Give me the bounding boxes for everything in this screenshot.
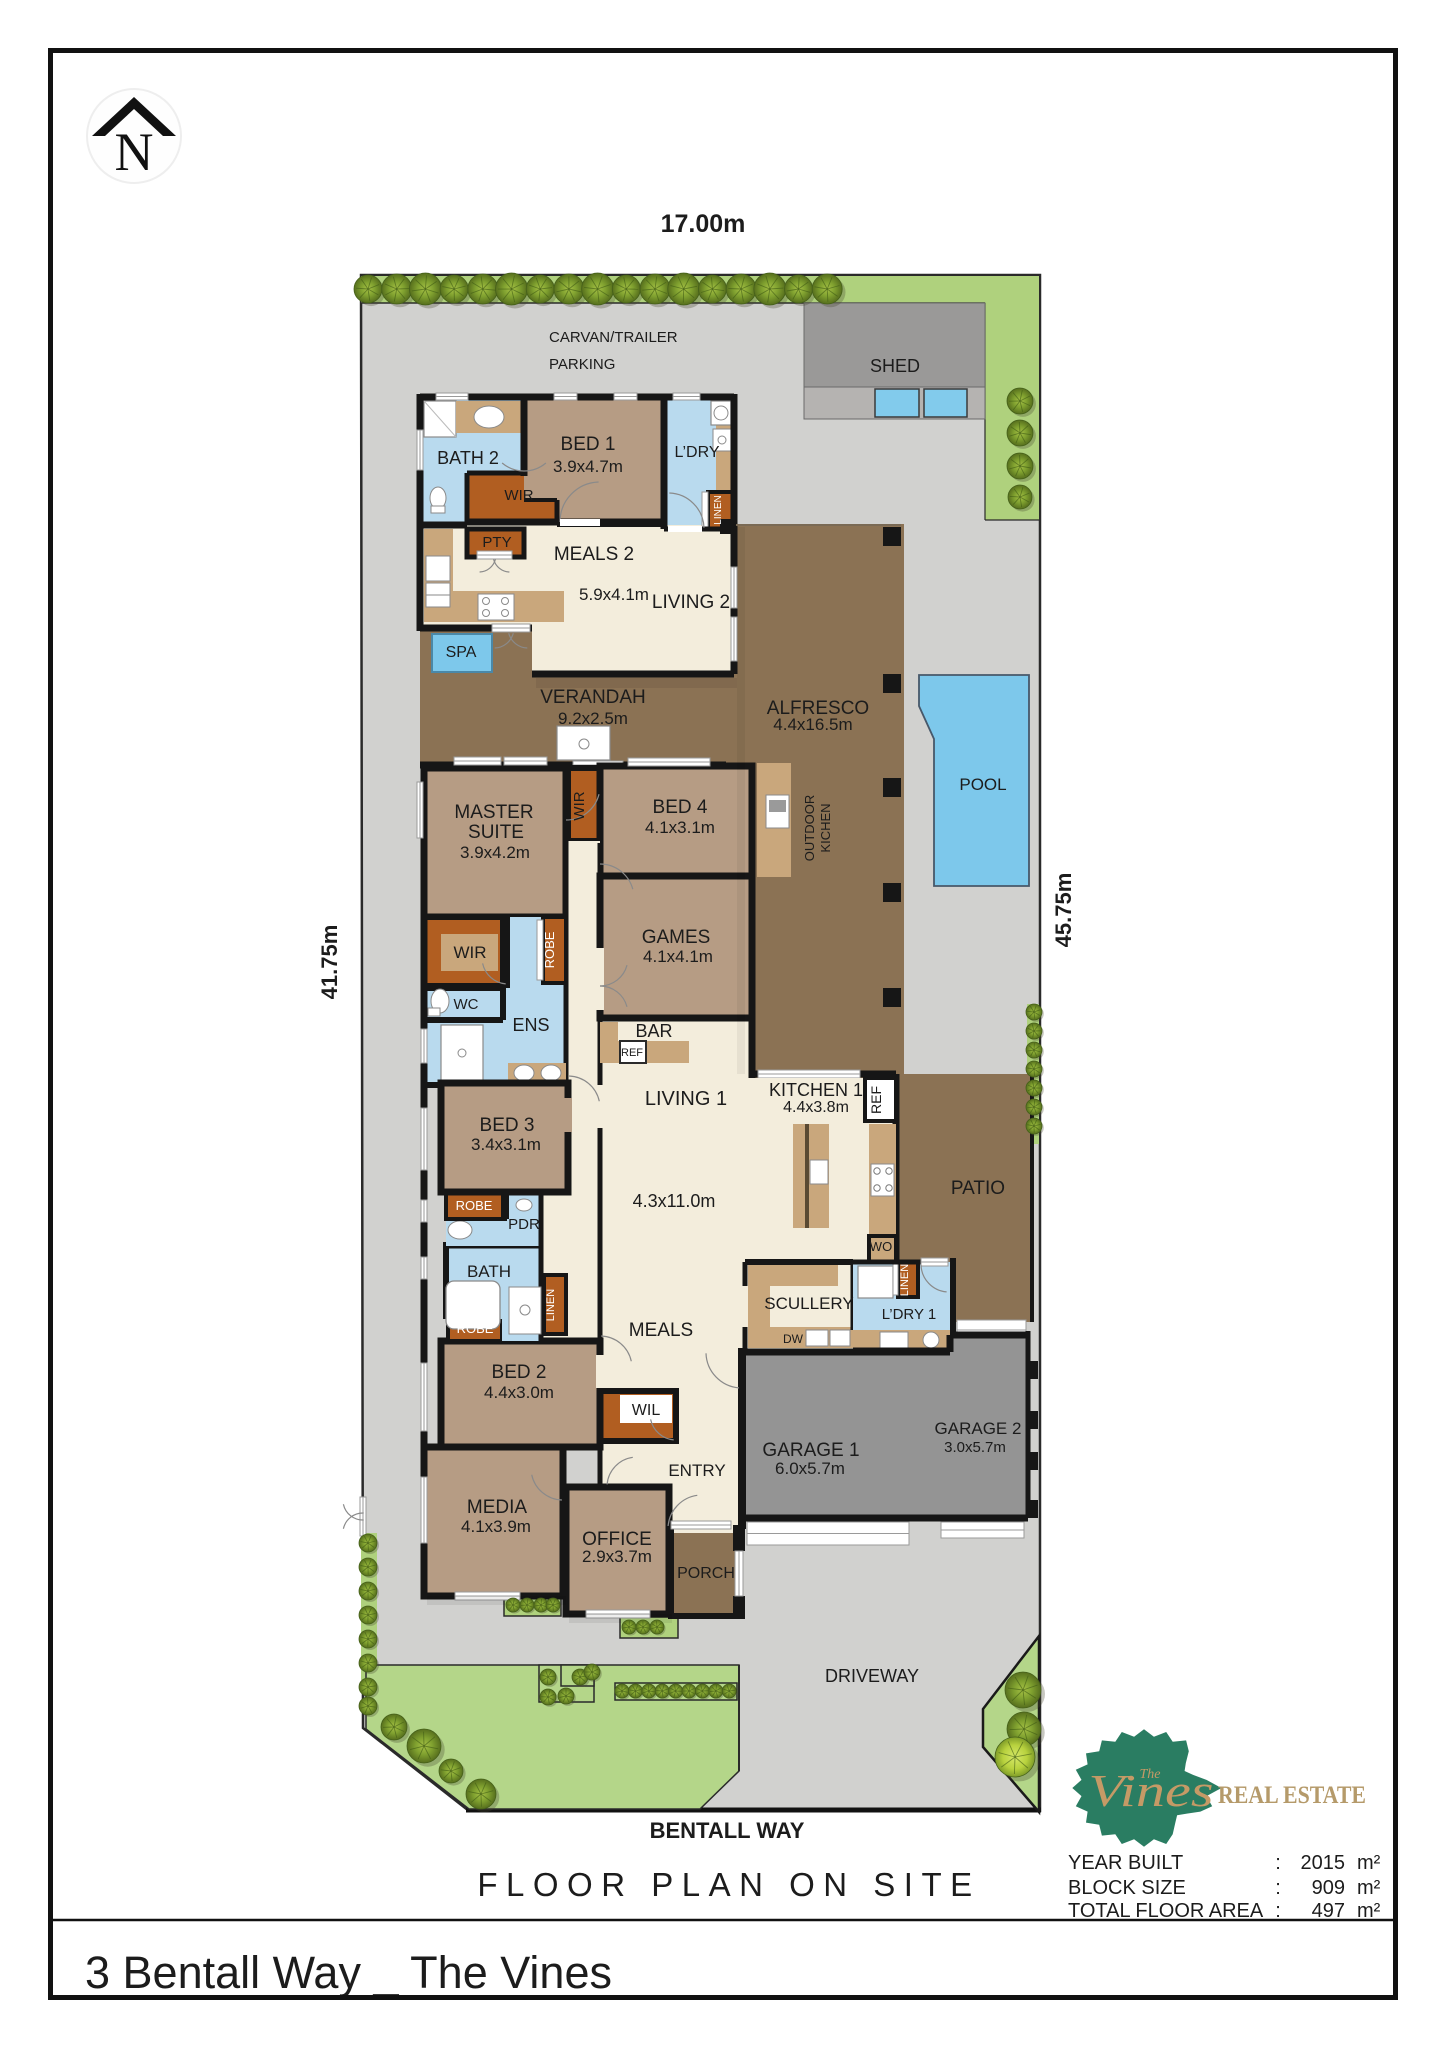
- svg-text:LINEN: LINEN: [899, 1264, 911, 1296]
- svg-text:MASTER: MASTER: [454, 802, 533, 823]
- svg-text:REF: REF: [621, 1047, 643, 1059]
- svg-text:BATH: BATH: [467, 1262, 511, 1281]
- svg-text:DRIVEWAY: DRIVEWAY: [825, 1666, 919, 1686]
- svg-text:BENTALL WAY: BENTALL WAY: [650, 1818, 805, 1843]
- svg-text:45.75m: 45.75m: [1051, 873, 1076, 948]
- svg-text:BED 3: BED 3: [480, 1115, 535, 1136]
- svg-text:MEALS 2: MEALS 2: [554, 544, 634, 565]
- svg-text:MEDIA: MEDIA: [467, 1497, 528, 1518]
- svg-text:ROBE: ROBE: [457, 1321, 494, 1336]
- svg-text:PATIO: PATIO: [951, 1178, 1005, 1199]
- svg-text:SPA: SPA: [446, 644, 477, 661]
- svg-text:WIR: WIR: [571, 791, 588, 820]
- svg-text:3.9x4.7m: 3.9x4.7m: [553, 457, 623, 476]
- svg-text:909: 909: [1312, 1877, 1345, 1899]
- svg-text:m²: m²: [1357, 1900, 1381, 1922]
- svg-text:GARAGE 2: GARAGE 2: [935, 1419, 1022, 1438]
- svg-text:LIVING 1: LIVING 1: [645, 1088, 727, 1110]
- svg-text:4.4x3.0m: 4.4x3.0m: [484, 1383, 554, 1402]
- svg-text:WIR: WIR: [453, 943, 486, 962]
- svg-text:SHED: SHED: [870, 356, 920, 376]
- svg-text:497: 497: [1312, 1900, 1345, 1922]
- svg-text:4.3x11.0m: 4.3x11.0m: [633, 1191, 716, 1211]
- svg-text:MEALS: MEALS: [629, 1320, 693, 1341]
- svg-text:TOTAL FLOOR AREA: TOTAL FLOOR AREA: [1068, 1900, 1264, 1922]
- svg-text:BATH 2: BATH 2: [437, 448, 499, 468]
- svg-text:DW: DW: [783, 1332, 804, 1346]
- svg-text:PARKING: PARKING: [549, 356, 615, 373]
- svg-text:ENS: ENS: [512, 1015, 549, 1035]
- svg-text:6.0x5.7m: 6.0x5.7m: [775, 1459, 845, 1478]
- svg-text::: :: [1275, 1852, 1281, 1874]
- svg-text:L’DRY 1: L’DRY 1: [882, 1306, 937, 1323]
- svg-text:SCULLERY: SCULLERY: [764, 1294, 853, 1313]
- svg-text:OUTDOOR: OUTDOOR: [802, 795, 817, 861]
- svg-text:m²: m²: [1357, 1852, 1381, 1874]
- svg-text:2.9x3.7m: 2.9x3.7m: [582, 1547, 652, 1566]
- svg-text:BED 1: BED 1: [561, 434, 616, 455]
- svg-text:4.4x16.5m: 4.4x16.5m: [773, 715, 852, 734]
- svg-text:WO: WO: [870, 1239, 892, 1254]
- svg-text:BED 4: BED 4: [653, 797, 708, 818]
- svg-text:BLOCK SIZE: BLOCK SIZE: [1068, 1877, 1186, 1899]
- svg-text:PTY: PTY: [482, 534, 511, 551]
- svg-text:N: N: [115, 122, 154, 182]
- svg-text:LINEN: LINEN: [713, 495, 724, 524]
- svg-text:9.2x2.5m: 9.2x2.5m: [558, 709, 628, 728]
- svg-text:3.4x3.1m: 3.4x3.1m: [471, 1135, 541, 1154]
- svg-text:4.1x4.1m: 4.1x4.1m: [643, 947, 713, 966]
- svg-text:KICHEN: KICHEN: [818, 803, 833, 852]
- svg-text:2015: 2015: [1301, 1852, 1346, 1874]
- svg-text:4.1x3.1m: 4.1x3.1m: [645, 818, 715, 837]
- svg-text:BAR: BAR: [635, 1021, 672, 1041]
- svg-text:CARVAN/TRAILER: CARVAN/TRAILER: [549, 329, 678, 346]
- svg-text:LINEN: LINEN: [545, 1289, 557, 1321]
- svg-text:PORCH: PORCH: [677, 1565, 735, 1582]
- svg-text:SUITE: SUITE: [468, 822, 524, 843]
- svg-text:PDR: PDR: [508, 1216, 540, 1233]
- svg-text:REAL ESTATE: REAL ESTATE: [1218, 1782, 1366, 1809]
- svg-text:POOL: POOL: [959, 775, 1006, 794]
- svg-text:LIVING 2: LIVING 2: [652, 592, 730, 613]
- svg-text:5.9x4.1m: 5.9x4.1m: [579, 585, 649, 604]
- svg-text:WC: WC: [454, 996, 479, 1013]
- svg-text:17.00m: 17.00m: [661, 210, 746, 238]
- svg-text:GAMES: GAMES: [642, 927, 711, 948]
- svg-text:GARAGE 1: GARAGE 1: [762, 1440, 859, 1461]
- svg-text:BED 2: BED 2: [492, 1362, 547, 1383]
- svg-text::: :: [1275, 1900, 1281, 1922]
- svg-text:REF: REF: [868, 1086, 884, 1114]
- svg-text:ENTRY: ENTRY: [668, 1461, 725, 1480]
- svg-text:3.9x4.2m: 3.9x4.2m: [460, 843, 530, 862]
- svg-text:ROBE: ROBE: [456, 1198, 493, 1213]
- svg-text:41.75m: 41.75m: [317, 925, 342, 1000]
- svg-text:L’DRY: L’DRY: [674, 444, 719, 461]
- svg-text:KITCHEN 1: KITCHEN 1: [769, 1080, 863, 1100]
- svg-text:4.1x3.9m: 4.1x3.9m: [461, 1517, 531, 1536]
- svg-text:ROBE: ROBE: [542, 931, 557, 968]
- svg-text:WIL: WIL: [632, 1402, 661, 1419]
- svg-text::: :: [1275, 1877, 1281, 1899]
- svg-text:YEAR BUILT: YEAR BUILT: [1068, 1852, 1183, 1874]
- svg-text:VERANDAH: VERANDAH: [540, 687, 646, 708]
- svg-text:Vines: Vines: [1089, 1765, 1214, 1816]
- svg-text:FLOOR PLAN ON SITE: FLOOR PLAN ON SITE: [477, 1866, 980, 1903]
- svg-text:3 Bentall Way _ The Vines: 3 Bentall Way _ The Vines: [85, 1947, 612, 1998]
- svg-text:WIR: WIR: [504, 487, 533, 504]
- svg-text:4.4x3.8m: 4.4x3.8m: [783, 1099, 849, 1116]
- svg-text:m²: m²: [1357, 1877, 1381, 1899]
- svg-text:3.0x5.7m: 3.0x5.7m: [944, 1439, 1006, 1456]
